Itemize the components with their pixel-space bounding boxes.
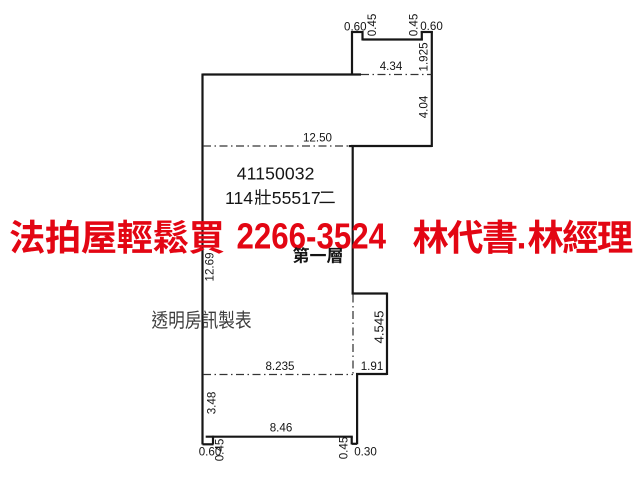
svg-text:4.04: 4.04 xyxy=(418,95,431,118)
svg-text:.: . xyxy=(517,216,527,257)
svg-text:1.925: 1.925 xyxy=(417,42,430,71)
svg-text:114: 114 xyxy=(225,188,253,208)
svg-text:4.34: 4.34 xyxy=(380,60,403,73)
svg-text:8.235: 8.235 xyxy=(265,360,294,373)
svg-text:0.45: 0.45 xyxy=(214,439,227,462)
svg-text:4.545: 4.545 xyxy=(371,310,386,343)
svg-text:3.48: 3.48 xyxy=(206,392,219,415)
svg-text:0.60: 0.60 xyxy=(344,21,367,34)
svg-text:2266-3524: 2266-3524 xyxy=(237,216,387,257)
svg-text:1.91: 1.91 xyxy=(361,360,384,373)
svg-text:12.69: 12.69 xyxy=(204,252,217,281)
svg-text:0.60: 0.60 xyxy=(420,20,443,33)
svg-text:55517: 55517 xyxy=(272,188,321,208)
svg-text:0.30: 0.30 xyxy=(354,446,377,459)
svg-text:0.45: 0.45 xyxy=(408,14,421,37)
svg-text:12.50: 12.50 xyxy=(303,132,332,145)
svg-text:41150032: 41150032 xyxy=(237,164,315,184)
svg-text:0.45: 0.45 xyxy=(338,437,351,460)
svg-text:0.45: 0.45 xyxy=(366,14,379,37)
svg-text:8.46: 8.46 xyxy=(270,422,293,435)
